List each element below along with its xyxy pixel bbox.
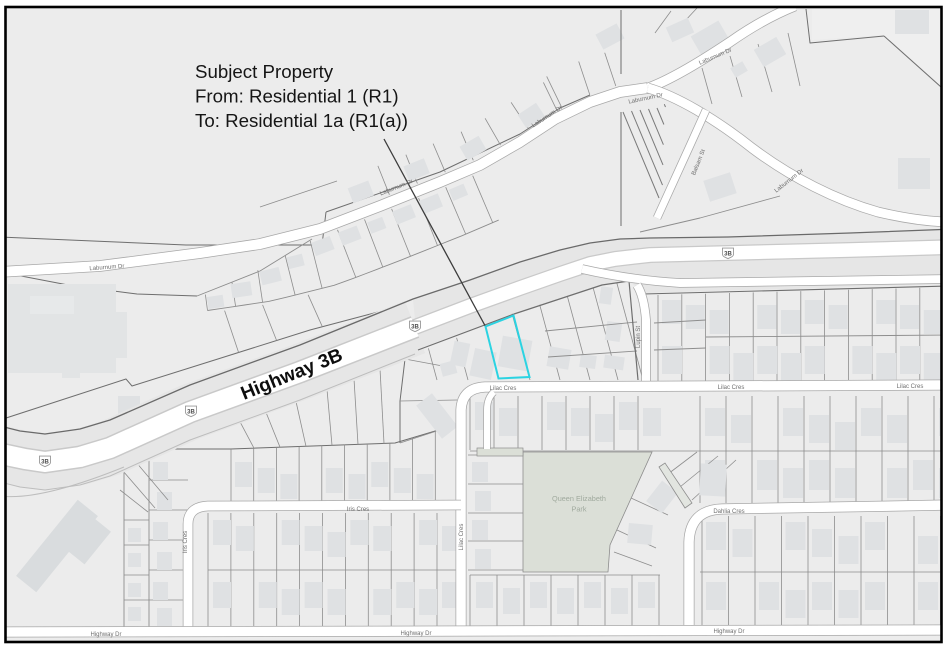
svg-text:Dahlia Cres: Dahlia Cres [713,509,744,515]
svg-text:Lilac Cres: Lilac Cres [718,385,745,391]
svg-text:Lilac Cres: Lilac Cres [897,384,924,390]
svg-text:3B: 3B [724,251,732,257]
svg-text:Queen Elizabeth: Queen Elizabeth [552,494,606,503]
svg-text:3B: 3B [187,409,195,415]
svg-text:From: Residential 1 (R1): From: Residential 1 (R1) [195,86,399,107]
svg-text:Subject Property: Subject Property [195,61,334,82]
svg-text:Highway Dr: Highway Dr [90,632,121,638]
svg-text:Park: Park [571,505,586,514]
svg-text:3B: 3B [41,459,49,465]
svg-text:To: Residential 1a (R1(a)): To: Residential 1a (R1(a)) [195,110,408,131]
svg-text:Lilac Cres: Lilac Cres [459,524,465,551]
svg-text:Iris Cres: Iris Cres [347,507,369,513]
svg-text:Lupin St: Lupin St [636,326,642,348]
svg-text:Lilac Cres: Lilac Cres [490,386,517,392]
svg-text:3B: 3B [411,324,419,330]
svg-text:Highway Dr: Highway Dr [713,629,744,635]
svg-text:Iris Cres: Iris Cres [183,531,189,553]
svg-text:Highway Dr: Highway Dr [400,631,431,637]
